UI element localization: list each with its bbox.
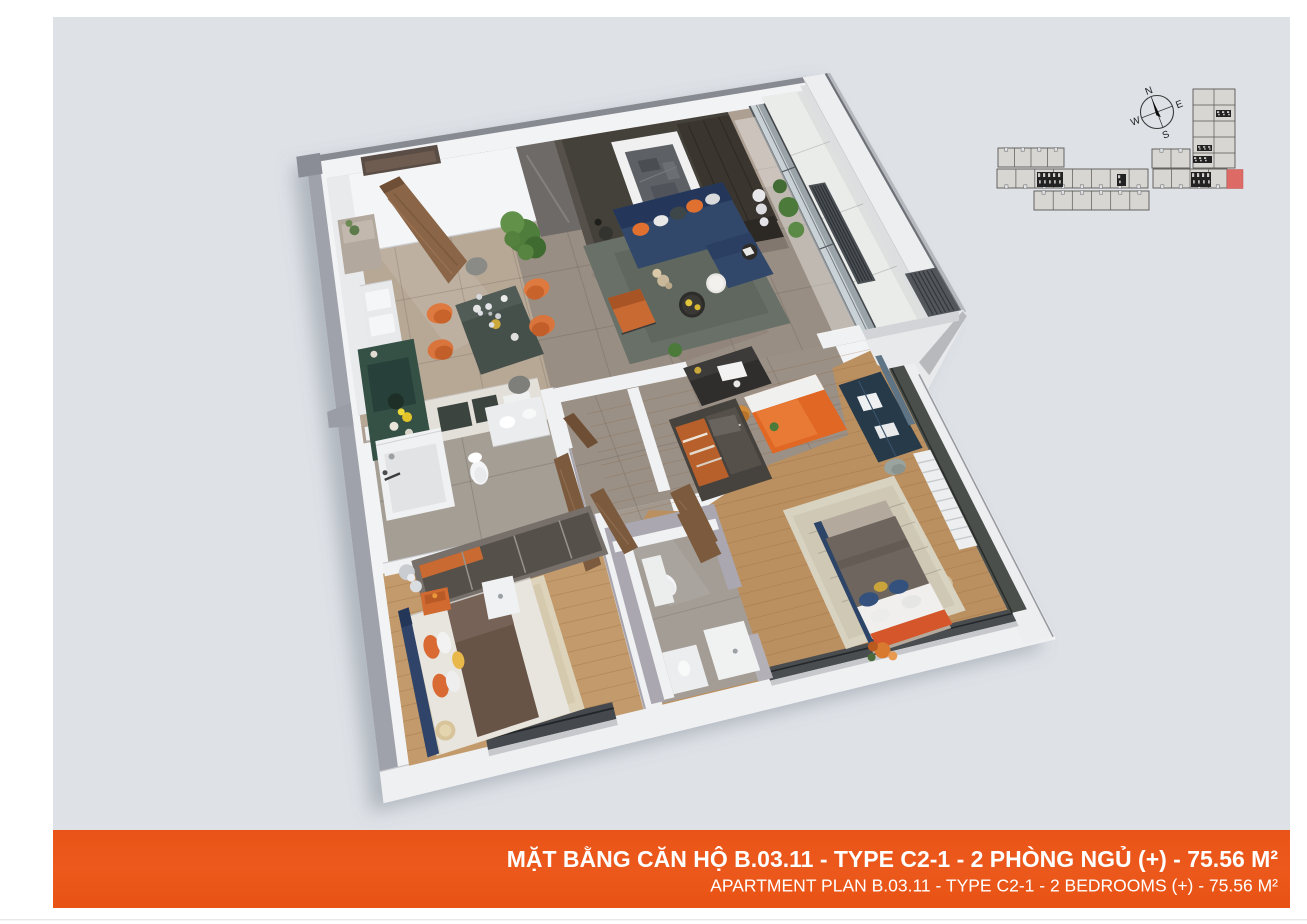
svg-text:MẶT BẰNG CĂN HỘ B.03.11 - TYPE: MẶT BẰNG CĂN HỘ B.03.11 - TYPE C2-1 - 2 … [507,844,1279,872]
svg-text:APARTMENT PLAN B.03.11 - TYPE: APARTMENT PLAN B.03.11 - TYPE C2-1 - 2 B… [710,876,1278,896]
